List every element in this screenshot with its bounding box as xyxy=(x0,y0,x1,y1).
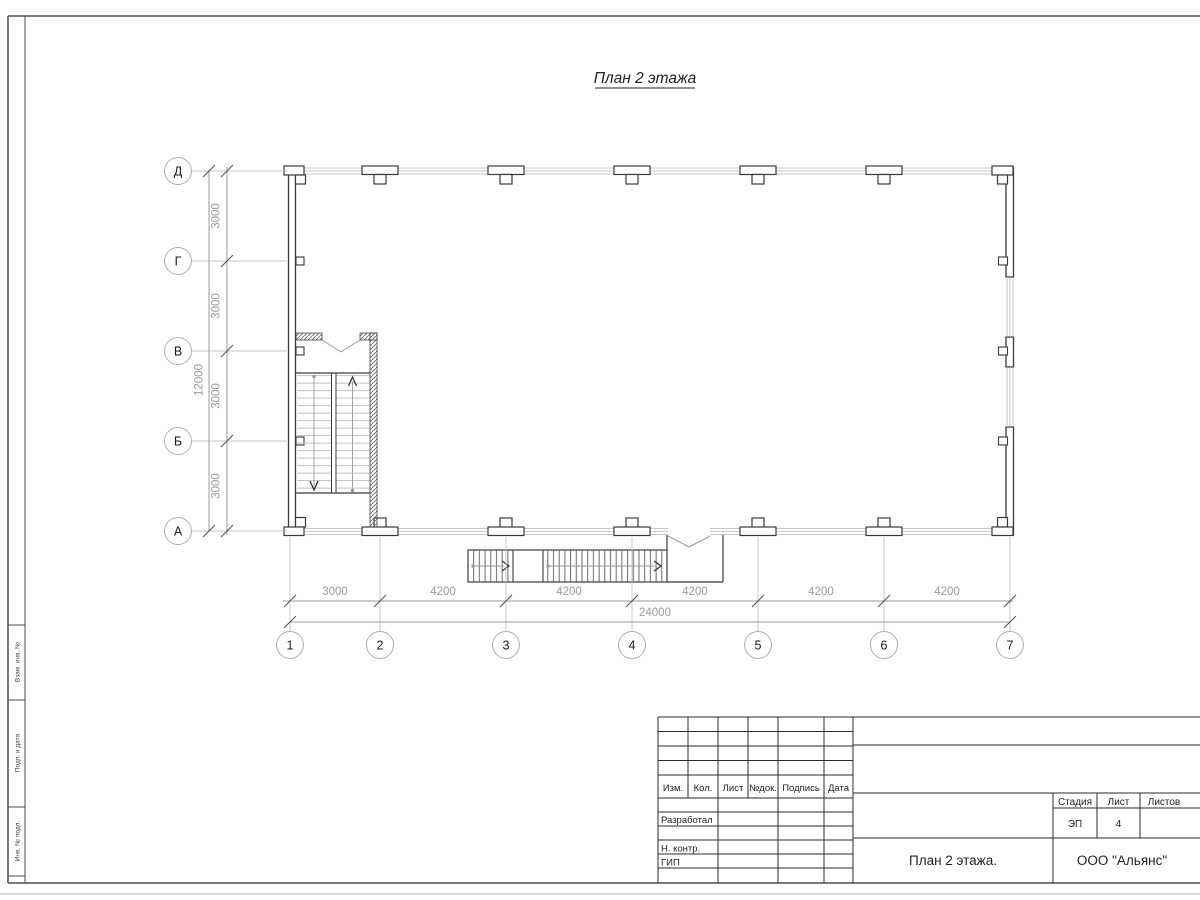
tb-company: ООО "Альянс" xyxy=(1077,853,1167,868)
dimensions-left: 3000 3000 3000 3000 12000 xyxy=(191,165,287,537)
axis-col-3: 3 xyxy=(503,639,510,653)
axis-col-2: 2 xyxy=(377,639,384,653)
stairwell xyxy=(296,333,377,527)
dim-v-2: 3000 xyxy=(211,293,223,319)
tb-sheet-value: 4 xyxy=(1116,819,1122,830)
bottom-wall-columns xyxy=(284,518,1013,536)
tb-header-kol: Кол. xyxy=(694,783,713,794)
page-title-text: План 2 этажа xyxy=(594,70,697,87)
dim-h-5: 4200 xyxy=(808,586,834,598)
tb-drawing-name: План 2 этажа. xyxy=(909,853,997,868)
tb-role-developed: Разработал xyxy=(661,815,713,826)
floor-plan xyxy=(284,166,1014,582)
tb-role-ncontr: Н. контр. xyxy=(661,844,700,855)
axis-col-4: 4 xyxy=(629,639,636,653)
sheet-frame xyxy=(0,16,1200,894)
dim-v-4: 3000 xyxy=(211,473,223,499)
exit-door xyxy=(668,536,710,547)
dim-h-1: 3000 xyxy=(322,586,348,598)
tb-header-ndok: №док. xyxy=(749,783,777,794)
frame-side-labels: Взам. инв. № Подп. и дата Инв. № подл. xyxy=(15,642,22,861)
axis-row-g: Г xyxy=(175,255,182,269)
axis-row-a: А xyxy=(174,525,183,539)
tb-sheet-label: Лист xyxy=(1108,797,1130,808)
side-wall-columns xyxy=(296,257,1008,445)
dim-h-2: 4200 xyxy=(430,586,456,598)
top-wall-columns xyxy=(284,166,1013,184)
stairwell-door xyxy=(322,340,360,352)
dim-h-3: 4200 xyxy=(556,586,582,598)
side-label-1: Взам. инв. № xyxy=(15,642,22,682)
tb-sheets-label: Листов xyxy=(1148,797,1181,808)
dim-h-6: 4200 xyxy=(934,586,960,598)
dim-h-4: 4200 xyxy=(682,586,708,598)
axis-bubbles-left: Д Г В Б А xyxy=(165,158,192,545)
tb-header-izm: Изм. xyxy=(663,783,683,794)
stairwell-wall-top-left xyxy=(296,333,322,340)
stair-flight-up xyxy=(337,374,370,493)
axis-col-5: 5 xyxy=(755,639,762,653)
tb-header-podpis: Подпись xyxy=(782,783,820,794)
left-wall xyxy=(289,168,296,535)
side-label-2: Подп. и дата xyxy=(15,733,22,772)
tb-header-list: Лист xyxy=(723,783,744,794)
stairwell-wall-right xyxy=(370,333,377,527)
tb-stage-label: Стадия xyxy=(1058,797,1092,808)
axis-col-6: 6 xyxy=(881,639,888,653)
page-title: План 2 этажа xyxy=(594,70,697,88)
axis-row-b: Б xyxy=(174,435,182,449)
tb-stage-value: ЭП xyxy=(1068,819,1082,830)
external-landing xyxy=(667,535,723,582)
dim-h-total: 24000 xyxy=(639,607,671,619)
title-block: Изм. Кол. Лист №док. Подпись Дата Разраб… xyxy=(658,717,1200,883)
side-label-3: Инв. № подл. xyxy=(15,821,22,862)
drawing-sheet: Взам. инв. № Подп. и дата Инв. № подл. П… xyxy=(0,0,1200,900)
axis-row-d: Д xyxy=(174,165,183,179)
axis-bubbles-bottom: 1 2 3 4 5 6 7 xyxy=(277,632,1024,659)
dim-v-total: 12000 xyxy=(194,364,206,396)
dim-v-1: 3000 xyxy=(211,203,223,229)
axis-col-7: 7 xyxy=(1007,639,1014,653)
tb-role-gip: ГИП xyxy=(661,858,680,869)
dim-v-3: 3000 xyxy=(211,383,223,409)
axis-row-v: В xyxy=(174,345,182,359)
axis-col-1: 1 xyxy=(287,639,294,653)
tb-header-data: Дата xyxy=(828,783,850,794)
